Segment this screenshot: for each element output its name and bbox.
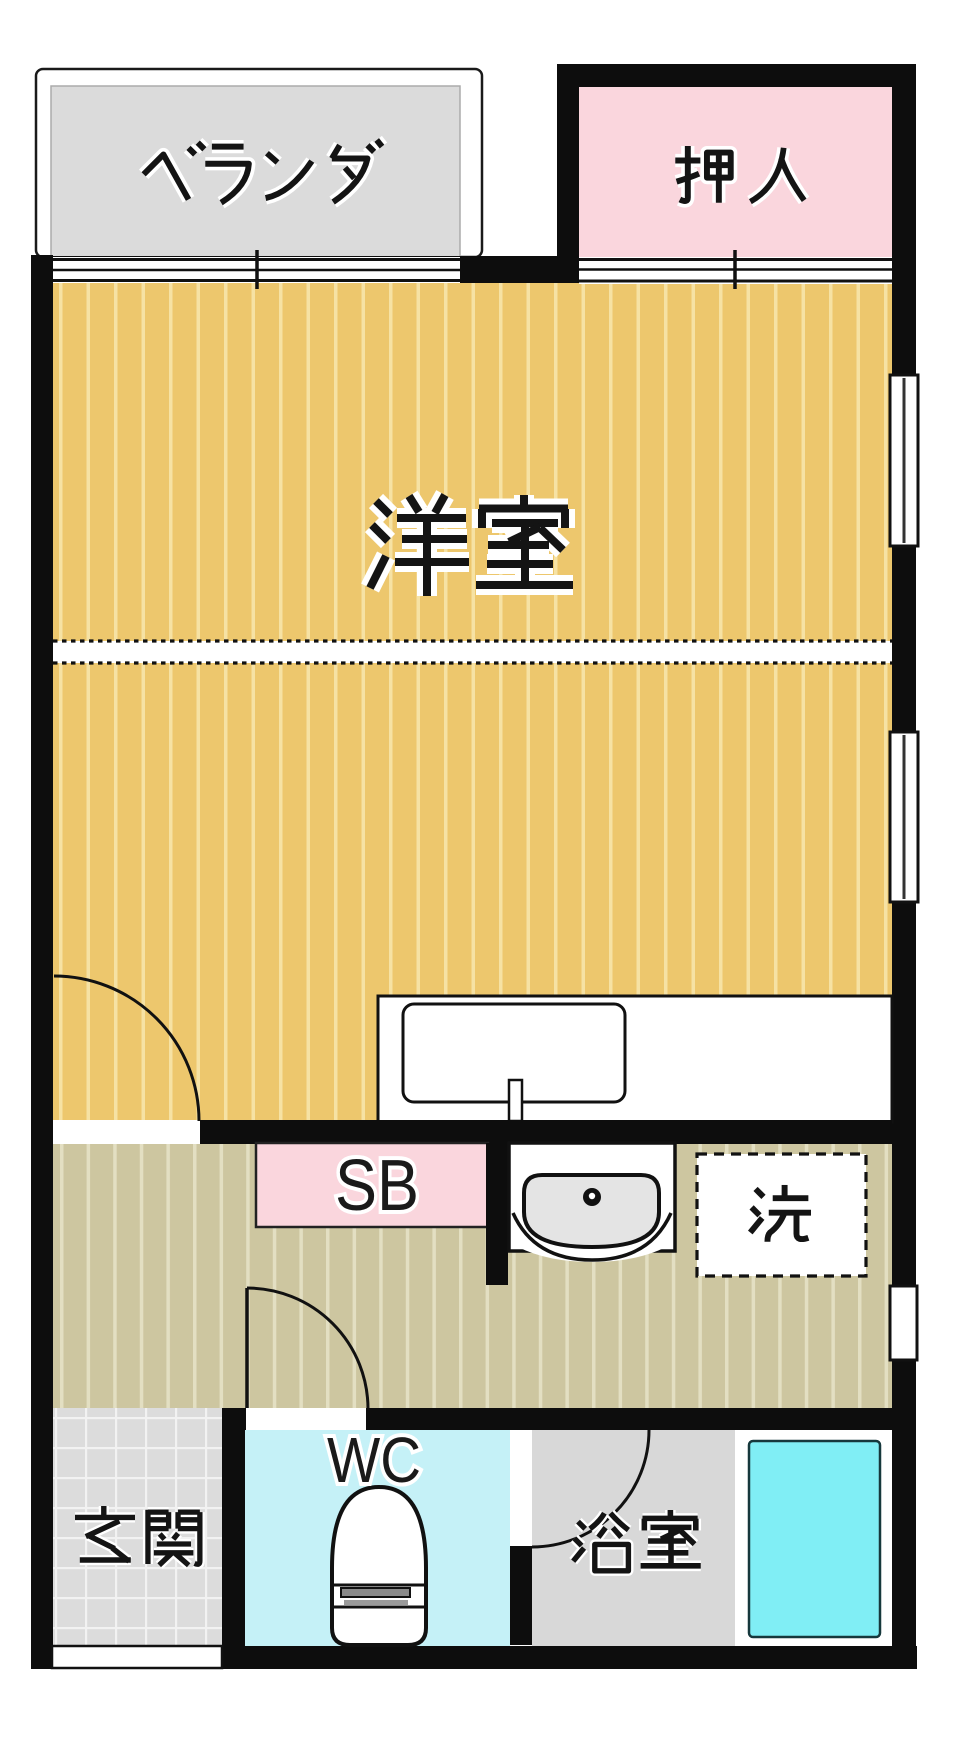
svg-text:WC: WC <box>327 1424 421 1496</box>
svg-text:SB: SB <box>335 1146 419 1226</box>
